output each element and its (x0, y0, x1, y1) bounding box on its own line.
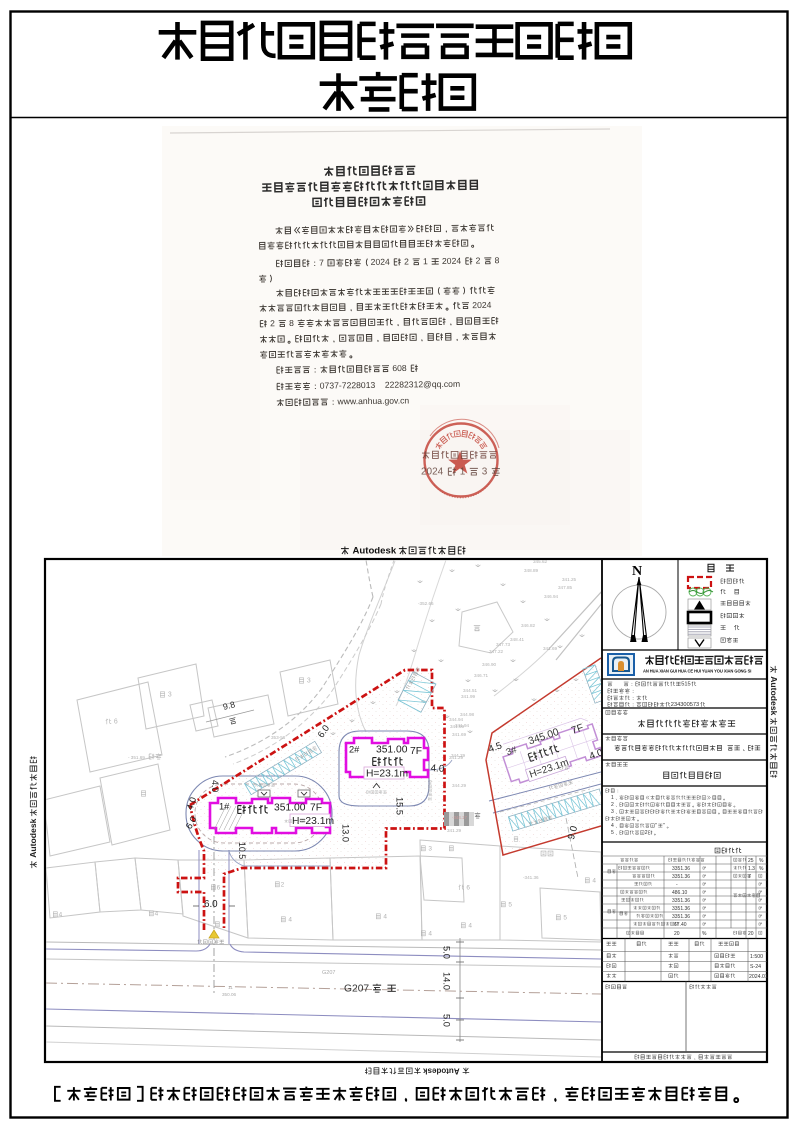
svg-text:3: 3 (427, 845, 433, 852)
svg-text:G207: G207 (344, 983, 372, 994)
svg-text:3: 3 (166, 692, 172, 699)
svg-text:20: 20 (748, 931, 754, 937)
svg-text:Autodesk: Autodesk (421, 1066, 462, 1075)
svg-text:5.0: 5.0 (441, 1014, 451, 1027)
svg-text:4: 4 (467, 922, 473, 929)
svg-text:346.71: 346.71 (474, 673, 488, 678)
svg-text:4: 4 (287, 916, 293, 923)
svg-text:1#: 1# (219, 802, 230, 812)
svg-text:346.94: 346.94 (544, 594, 558, 599)
svg-text:6: 6 (465, 884, 471, 891)
svg-text:25: 25 (748, 858, 754, 864)
svg-text:2024: 2024 (470, 300, 492, 310)
svg-text:341.25: 341.25 (562, 577, 576, 582)
svg-text:N: N (632, 564, 642, 579)
svg-text:344.29: 344.29 (451, 753, 465, 758)
svg-text:1: 1 (611, 795, 614, 801)
svg-text:5: 5 (611, 830, 614, 836)
svg-text:AN HUA XIAN GUI HUA CE HUI YUA: AN HUA XIAN GUI HUA CE HUI YUAN YOU XIAN… (643, 669, 751, 674)
svg-text:3351.36: 3351.36 (672, 898, 690, 904)
svg-text:515: 515 (681, 682, 690, 688)
svg-text:3351.36: 3351.36 (672, 874, 690, 880)
svg-text:347.22: 347.22 (489, 649, 503, 654)
svg-text:5: 5 (562, 914, 568, 921)
svg-text:6.0: 6.0 (204, 899, 218, 910)
svg-text:20: 20 (674, 931, 680, 937)
svg-text:2: 2 (281, 881, 285, 888)
svg-text:2#: 2# (349, 745, 360, 755)
svg-text:351.00: 351.00 (376, 744, 408, 755)
svg-text:341.29: 341.29 (447, 828, 461, 833)
svg-text:4: 4 (611, 823, 614, 829)
svg-text:341.99: 341.99 (461, 694, 475, 699)
svg-text:13.0: 13.0 (340, 824, 350, 842)
svg-text:4: 4 (155, 910, 159, 917)
svg-text:341.69: 341.69 (450, 724, 464, 729)
svg-text:353-56: 353-56 (271, 735, 286, 740)
svg-text:347.73: 347.73 (496, 642, 510, 647)
svg-text:11: 11 (228, 985, 233, 990)
svg-text:346.90: 346.90 (482, 662, 496, 667)
svg-text:%: % (759, 858, 764, 864)
svg-text:4.0: 4.0 (430, 763, 445, 775)
svg-text:10.5: 10.5 (237, 842, 247, 859)
svg-text:3: 3 (611, 809, 614, 815)
svg-text:344.51: 344.51 (463, 688, 477, 693)
svg-text:4: 4 (591, 877, 597, 884)
svg-text:7F: 7F (410, 746, 422, 757)
svg-text:1:500: 1:500 (750, 954, 763, 960)
svg-text:2: 2 (402, 256, 412, 266)
svg-text:-344.17: -344.17 (452, 815, 467, 820)
svg-text:341.69: 341.69 (543, 646, 557, 651)
svg-text:1.3: 1.3 (748, 866, 755, 872)
svg-text:S-24: S-24 (750, 964, 761, 970)
svg-text:0737-7228013 22282312@qq.co: 0737-7228013 22282312@qq.com (320, 379, 461, 391)
svg-text:2: 2 (611, 802, 614, 808)
svg-text:3351.36: 3351.36 (672, 906, 690, 912)
svg-text:2024.01: 2024.01 (749, 974, 768, 980)
svg-text:%: % (702, 931, 707, 937)
svg-text:6: 6 (112, 719, 118, 726)
svg-text:7: 7 (319, 257, 326, 267)
svg-text:Autodesk: Autodesk (28, 816, 38, 860)
svg-text:344.94: 344.94 (449, 717, 463, 722)
svg-text:351.00: 351.00 (274, 802, 306, 813)
svg-text:14.0: 14.0 (441, 972, 451, 990)
svg-text:4.0: 4.0 (210, 780, 220, 792)
svg-text:5.0: 5.0 (441, 946, 451, 959)
svg-text:4: 4 (382, 913, 388, 920)
svg-text:4: 4 (427, 930, 433, 937)
svg-text:2: 2 (645, 830, 648, 836)
svg-text:608: 608 (390, 363, 409, 373)
svg-text:350.06: 350.06 (222, 992, 236, 997)
svg-text:1~2F: 1~2F (297, 818, 307, 823)
svg-text:3: 3 (305, 678, 311, 685)
svg-text:5: 5 (507, 901, 513, 908)
svg-text:8: 8 (287, 318, 297, 328)
svg-text:H=23.1m: H=23.1m (366, 768, 408, 779)
svg-text:234300573: 234300573 (671, 702, 699, 708)
svg-text:Autodesk: Autodesk (350, 545, 399, 556)
svg-text:G207: G207 (322, 970, 335, 976)
svg-text:347.85: 347.85 (558, 585, 572, 590)
svg-text:6: 6 (217, 884, 221, 891)
svg-text:341.69: 341.69 (452, 732, 466, 737)
svg-text:346.82: 346.82 (521, 623, 535, 628)
svg-text:1: 1 (457, 467, 468, 478)
svg-text:8: 8 (492, 255, 500, 265)
svg-text:- 351.69: - 351.69 (128, 755, 145, 760)
svg-text:Autodesk: Autodesk (769, 674, 779, 718)
svg-text:3351.36: 3351.36 (672, 866, 690, 872)
svg-text:7: 7 (748, 874, 751, 880)
svg-text:348.41: 348.41 (510, 637, 524, 642)
svg-text:2024: 2024 (440, 256, 464, 266)
svg-text:2: 2 (473, 255, 483, 265)
svg-text:-352.66: -352.66 (418, 601, 434, 606)
svg-text:-341.36: -341.36 (523, 875, 539, 880)
svg-text:%: % (759, 866, 764, 872)
svg-text:3: 3 (479, 467, 490, 478)
svg-text:344.29: 344.29 (452, 783, 466, 788)
svg-text:2024: 2024 (371, 257, 393, 267)
svg-text:1: 1 (421, 256, 431, 266)
svg-text:2024: 2024 (421, 467, 446, 478)
svg-text:486.10: 486.10 (672, 890, 688, 896)
svg-text:": " (655, 823, 657, 829)
svg-text:15.5: 15.5 (394, 797, 404, 815)
svg-text:348.89: 348.89 (524, 568, 538, 573)
svg-text:3351.36: 3351.36 (672, 914, 690, 920)
svg-text:4: 4 (59, 911, 63, 918)
svg-text:www.anhua.gov.cn: www.anhua.gov.cn (336, 395, 409, 406)
svg-text:": " (663, 823, 665, 829)
svg-text:67.40: 67.40 (674, 922, 687, 928)
svg-text:7F: 7F (310, 802, 322, 813)
svg-text:2: 2 (268, 318, 278, 328)
